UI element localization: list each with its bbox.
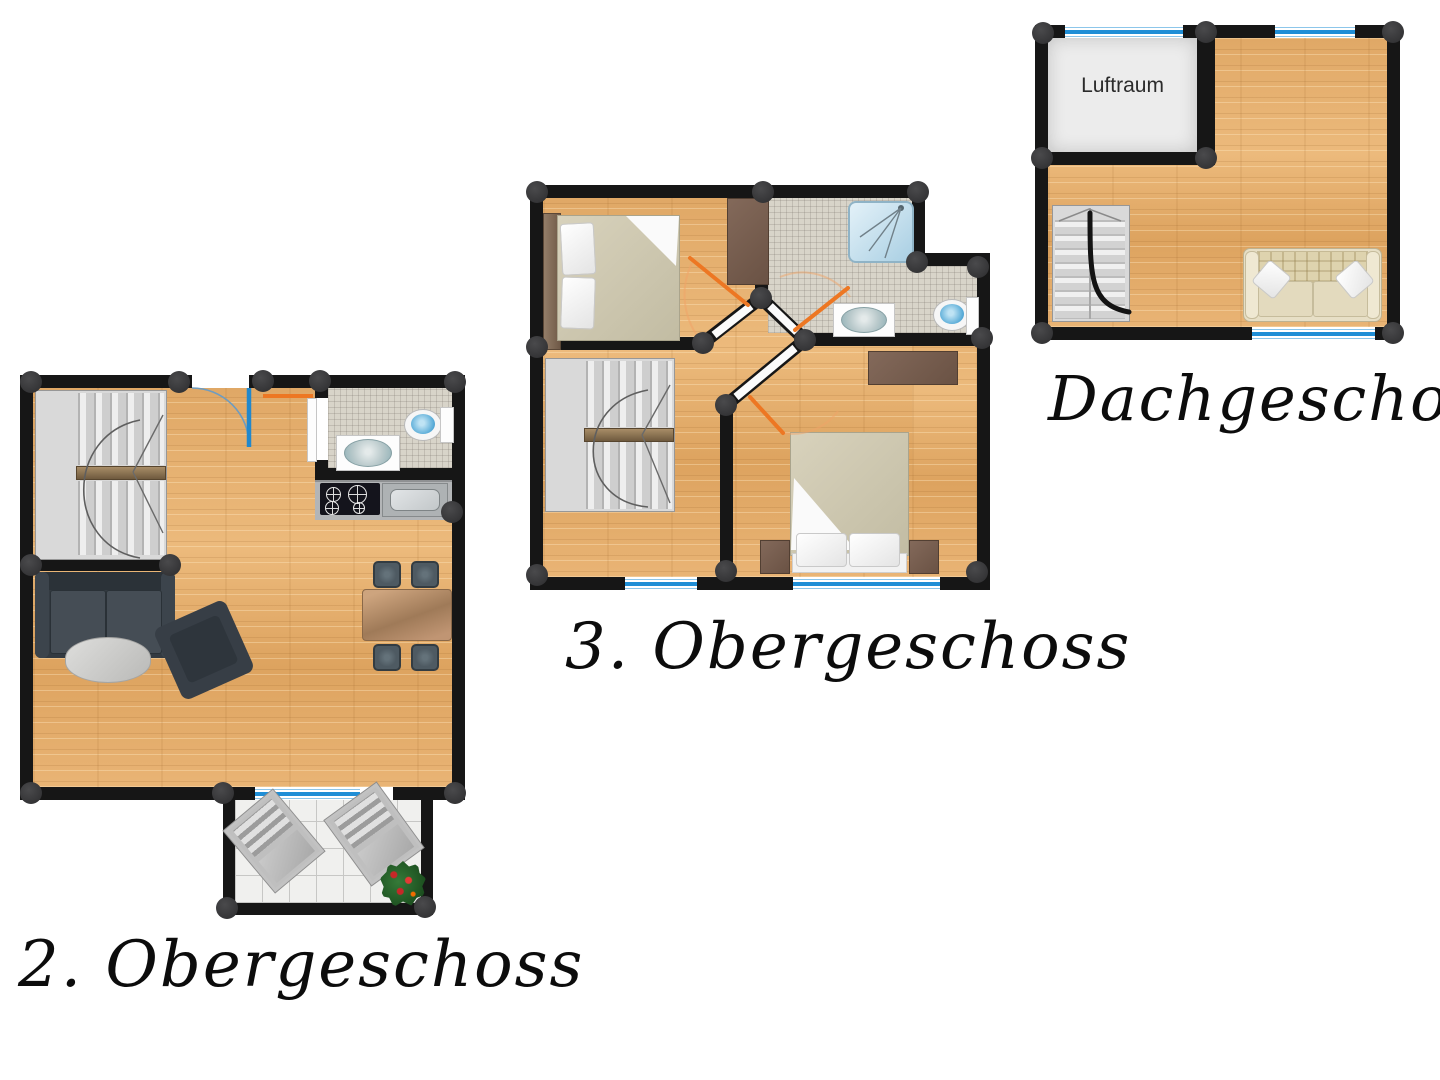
bathroom-door-swing-line [263,394,313,398]
burner [325,501,339,515]
window-pane-line [793,582,940,586]
window-pane-line [1275,30,1355,34]
window-pane-line [1065,36,1183,37]
window-pane-line [625,582,697,586]
bedroom-window [793,577,940,590]
burner [353,502,365,514]
window-pane-line [1252,338,1375,339]
wall-joint [309,370,331,392]
wall-joint [526,564,548,586]
plan-title-og2: 2. Obergeschoss [18,928,584,1002]
luftraum-void: Luftraum [1048,38,1197,152]
wall-joint [444,782,466,804]
wall-right [1387,25,1400,340]
wardrobe [727,198,769,285]
wall-joint [715,394,737,416]
roof-window [1252,327,1375,340]
chair-seat [378,566,396,583]
wall-joint [794,329,816,351]
wall-joint [168,371,190,393]
toilet-tank [440,407,454,443]
wall-joint [20,554,42,576]
chair-seat [416,649,434,666]
wall-joint [1382,21,1404,43]
sofa-back [35,572,175,590]
wall-joint [414,896,436,918]
wall-joint [526,336,548,358]
bathroom-sink-basin [344,439,392,467]
toilet-bowl-water [411,414,435,434]
roof-window [1275,25,1355,38]
wall-joint [1195,147,1217,169]
window-pane-line [793,579,940,580]
balcony-wall-bottom [223,903,433,915]
staircase [1052,205,1130,322]
wall-hall [720,401,733,577]
wall-luftraum-bottom [1035,152,1215,165]
wall-joint [692,332,714,354]
bathroom-sink-basin [841,307,887,333]
wall-left [530,185,543,590]
window-pane-line [1275,27,1355,28]
wall-joint [20,782,42,804]
wall-joint [967,256,989,278]
stair-flight-upper [586,361,672,427]
shower [848,201,914,263]
sofa-armrest [35,572,49,658]
plan-title-text: 2. Obergeschoss [18,928,584,1002]
wall-joint [752,181,774,203]
stair-landing-bar [584,428,674,442]
dining-table [362,589,452,641]
wall-joint [252,370,274,392]
pillow [796,533,847,567]
wall-left [1035,25,1048,340]
wall-left [20,375,33,800]
staircase [545,358,675,512]
wall-joint [1382,322,1404,344]
pillow [560,276,596,329]
kitchen-sink [382,483,448,517]
wall-joint [444,371,466,393]
wall-joint [441,501,463,523]
wall-joint [1032,22,1054,44]
dining-chair [373,561,401,588]
kitchen-sink-basin [390,489,440,511]
plan-og2 [20,375,465,915]
wall-joint [715,560,737,582]
window-pane-line [625,588,697,589]
wall-joint [907,181,929,203]
wall-bottom [20,787,465,800]
stair-flight-upper [78,393,164,465]
window-pane-line [1065,30,1183,34]
wall-joint [966,561,988,583]
window-pane-line [793,588,940,589]
bathroom-door-leaf [307,398,317,462]
plan-og3 [530,185,990,590]
chair-seat [378,649,396,666]
entry-door-opening [192,375,249,388]
wall-joint [906,251,928,273]
window-pane-line [1252,332,1375,336]
dining-chair [373,644,401,671]
dining-chair [411,561,439,588]
stair-flight-lower [78,481,164,555]
cooktop [320,483,380,515]
floorplan-canvas: 2. Obergeschoss [0,0,1440,1080]
wall-joint [1195,21,1217,43]
plan-title-text: 3. Obergeschoss [565,610,1131,684]
plan-dach: Luftraum [1035,25,1400,340]
window-pane-line [625,579,697,580]
dining-chair [411,644,439,671]
armchair-seat [168,614,238,683]
coffee-table [65,637,151,683]
wall-joint [750,287,772,309]
wall-joint [159,554,181,576]
wall-joint [216,897,238,919]
stair-flight-lower [586,441,672,509]
window-pane-line [255,789,360,790]
chair-seat [416,566,434,583]
roof-window [1065,25,1183,38]
window-pane-line [1275,36,1355,37]
burner [326,487,341,502]
wall-joint [526,181,548,203]
wall-joint [971,327,993,349]
wall-joint [20,371,42,393]
bed-sheet-fold [626,216,679,269]
staircase [35,390,167,560]
plan-title-dach: Dachgeschoss [1048,362,1440,435]
nightstand [909,540,939,574]
wall-joint [212,782,234,804]
dresser [868,351,958,385]
window-pane-line [1252,329,1375,330]
plan-title-text: Dachgeschoss [1048,362,1440,435]
plan-title-og3: 3. Obergeschoss [565,610,1131,684]
stair-room-window [625,577,697,590]
luftraum-label: Luftraum [1081,74,1164,98]
window-pane-line [1065,27,1183,28]
wall-luftraum-right [1197,25,1215,165]
wall-top [530,185,925,198]
pillow [849,533,900,567]
toilet-bowl-water [940,304,964,324]
stair-landing-bar [76,466,166,480]
wall-joint [1031,322,1053,344]
wall-joint [1031,147,1053,169]
nightstand [760,540,790,574]
stair-center-rail [1089,208,1091,319]
pillow [560,222,597,276]
